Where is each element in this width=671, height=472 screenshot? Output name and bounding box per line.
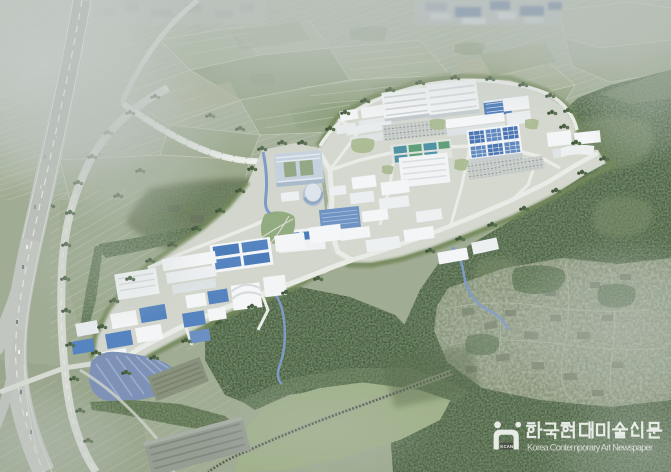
svg-text:Korea Contemporary Art Newspap: Korea Contemporary Art Newspaper [527, 443, 653, 453]
svg-text:KCAN: KCAN [500, 444, 513, 449]
